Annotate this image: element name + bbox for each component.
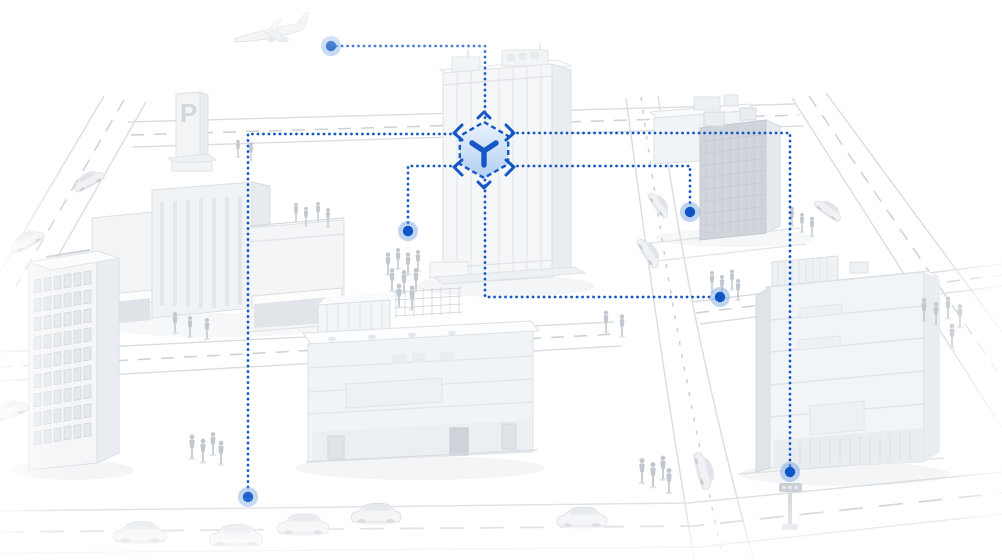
node-southwest-street[interactable] [238, 487, 258, 507]
city-illustration: P [0, 0, 1002, 560]
link-northeast [512, 166, 690, 206]
node-airplane[interactable] [321, 36, 341, 56]
link-southwest [248, 134, 456, 491]
connection-overlay [0, 0, 1002, 560]
link-southeast [512, 133, 790, 466]
node-crossing[interactable] [710, 287, 730, 307]
connection-lines [238, 36, 800, 507]
cube-3d-icon[interactable] [454, 112, 514, 188]
node-southeast-street[interactable] [780, 462, 800, 482]
node-northeast-block[interactable] [680, 202, 700, 222]
link-crossing [485, 180, 714, 297]
node-plaza[interactable] [398, 221, 418, 241]
link-plaza [408, 166, 456, 225]
link-airplane [331, 46, 485, 121]
